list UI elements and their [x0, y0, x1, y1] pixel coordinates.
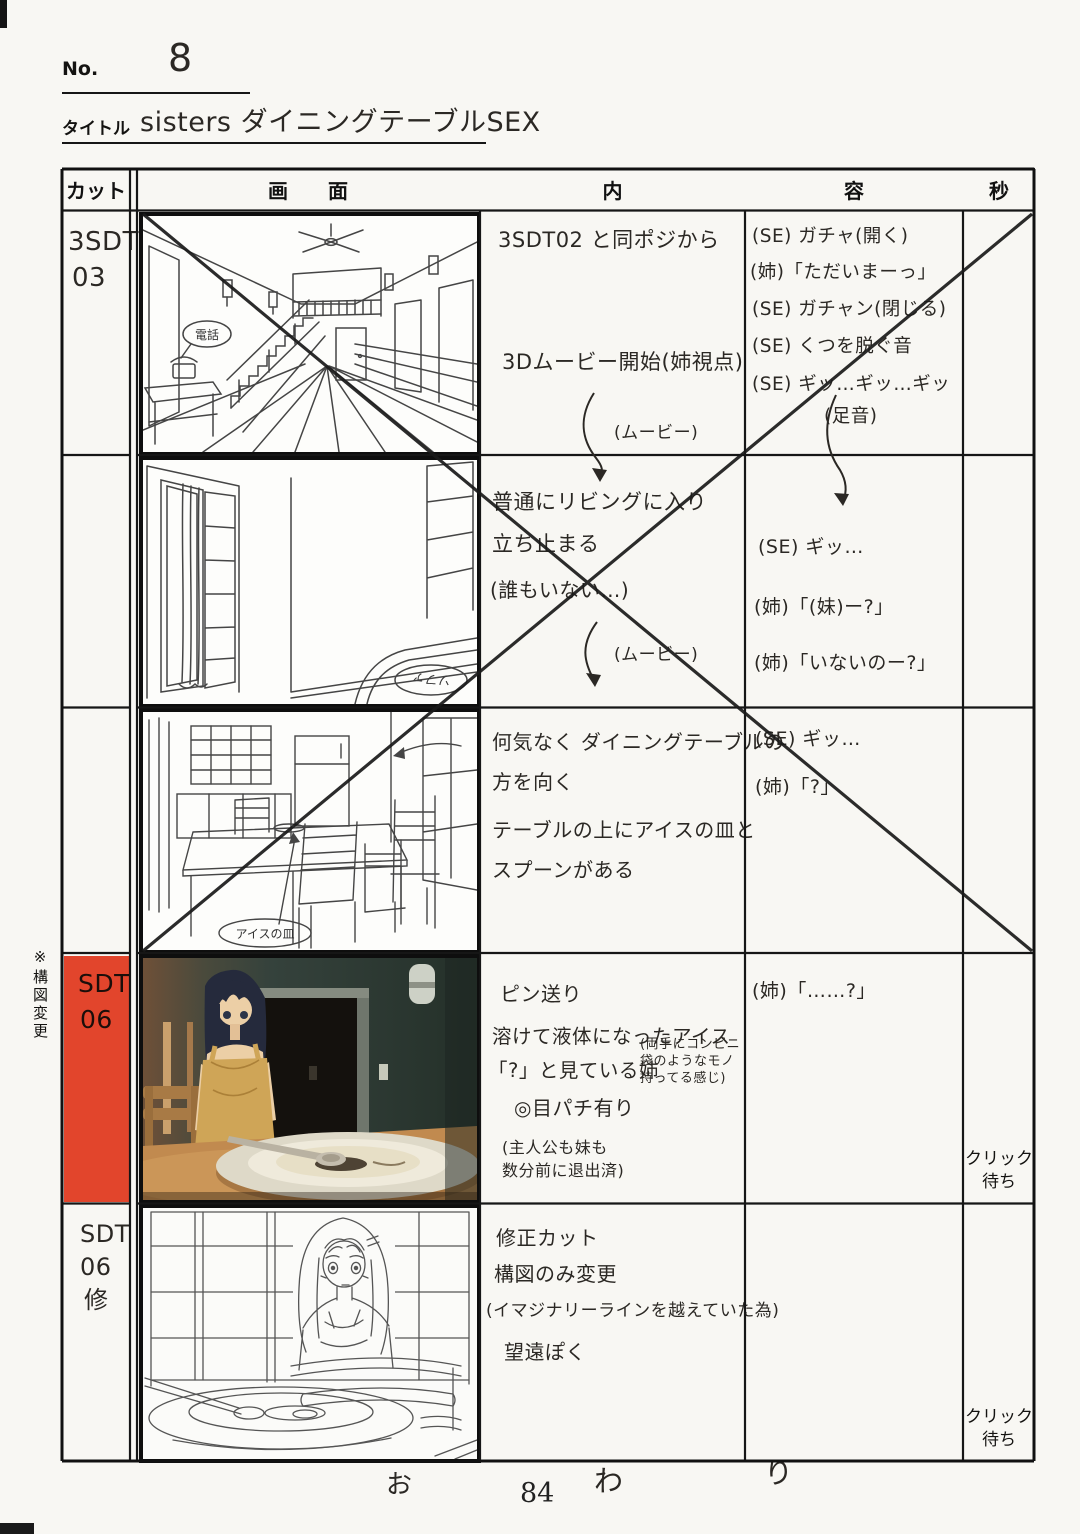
content-note: ピン送り — [500, 978, 582, 1007]
cut-line: SDT — [78, 966, 130, 1002]
hallway-sketch-drawing: 電話 — [143, 216, 477, 452]
dialog-line: (姉)「……?」 — [752, 976, 876, 1003]
dialog-line: (姉)「いないのー?」 — [754, 648, 936, 675]
page-no-label: No. — [62, 58, 98, 80]
cut-line: 3SDT — [68, 224, 139, 260]
content-note: 方を向く — [492, 766, 574, 795]
storyboard-panel-diningroom-sketch: アイスの皿 — [139, 708, 481, 954]
no-underline — [62, 92, 250, 94]
panel-label-ice-plate: アイスの皿 — [235, 927, 294, 941]
cut-line: 03 — [68, 260, 139, 296]
col-header-seconds: 秒 — [963, 168, 1035, 210]
bottom-note-line: 数分前に退出済) — [502, 1159, 624, 1182]
content-note: 立ち止まる — [492, 528, 600, 558]
panel-label-telephone: 電話 — [195, 327, 219, 342]
side-note-line: (両手にコンビニ — [640, 1036, 740, 1053]
page-number: 84 — [520, 1478, 554, 1509]
title-label: タイトル — [62, 114, 130, 139]
content-note: 何気なく ダイニングテーブルの — [492, 726, 785, 755]
dialog-line: (SE) ギッ… — [755, 724, 861, 751]
dialog-line: (SE) ギッ…ギッ…ギッ — [752, 370, 950, 396]
content-note: 普通にリビングに入り — [492, 486, 707, 516]
color-frame-anime-still — [143, 958, 477, 1200]
storyboard-page-scan: { "page": { "no_label": "No.", "no_value… — [0, 0, 1080, 1534]
content-note: 望遠ぽく — [504, 1336, 586, 1365]
storyboard-panel-hallway-sketch: 電話 — [139, 212, 481, 456]
dialog-line: (足音) — [824, 402, 877, 428]
content-bottom-note: (主人公も妹も 数分前に退出済) — [502, 1136, 624, 1182]
col-header-screen: 画 面 — [136, 168, 480, 210]
side-note-line: 袋のようなモノ — [640, 1053, 740, 1070]
content-note: ◎目パチ有り — [514, 1092, 634, 1121]
movie-note: (ムービー) — [614, 640, 698, 665]
content-note: 3SDT02 と同ポジから — [498, 224, 720, 254]
content-note: 3Dムービー開始(姉視点) — [502, 346, 743, 376]
dialog-line: (SE) ガチャ(開く) — [752, 222, 909, 248]
revised-sketch-drawing — [143, 1208, 477, 1459]
scan-artifact-bottom-left — [0, 1523, 34, 1534]
col-header-cut: カット — [62, 168, 130, 210]
page-no-value: 8 — [168, 36, 193, 80]
scan-artifact-top-left — [0, 0, 7, 28]
cut-line: 06 — [80, 1251, 130, 1284]
content-note: テーブルの上にアイスの皿と — [492, 814, 756, 843]
livingroom-sketch-drawing: ソファ — [143, 460, 477, 704]
seconds-click-wait: クリック待ち — [963, 1148, 1035, 1194]
diningroom-sketch-drawing: アイスの皿 — [143, 712, 477, 950]
content-side-note: (両手にコンビニ 袋のようなモノ 持ってる感じ) — [640, 1036, 740, 1087]
seconds-click-wait: クリック待ち — [963, 1406, 1035, 1452]
col-header-dialog: 容 — [745, 168, 963, 210]
content-note: 「?」と見ている姉 — [488, 1054, 659, 1083]
storyboard-panel-revised-sketch — [139, 1204, 481, 1463]
cut-line: 06 — [78, 1002, 130, 1038]
cut-number: 3SDT 03 — [68, 224, 139, 296]
movie-note: (ムービー) — [614, 418, 698, 443]
footer-mark-ri: り — [764, 1450, 794, 1492]
content-note: 構図のみ変更 — [494, 1258, 617, 1287]
content-note: (イマジナリーラインを越えていた為) — [486, 1296, 779, 1321]
title-value: sisters ダイニングテーブルSEX — [140, 100, 541, 139]
title-underline — [62, 142, 486, 144]
dialog-line: (SE) ガチャン(閉じる) — [752, 295, 947, 321]
content-note: スプーンがある — [492, 854, 635, 883]
bottom-note-line: (主人公も妹も — [502, 1136, 624, 1159]
col-header-content: 内 — [480, 168, 745, 210]
content-note: (誰もいない…) — [490, 574, 629, 603]
storyboard-panel-color-frame — [139, 954, 481, 1204]
dialog-line: (姉)「ただいまーっ」 — [750, 258, 936, 284]
storyboard-panel-livingroom-sketch: ソファ — [139, 456, 481, 708]
margin-note-composition-change: ※構図変更 — [30, 948, 51, 1088]
cut-number-revised: SDT 06 修 — [80, 1218, 130, 1317]
dialog-line: (SE) ギッ… — [758, 532, 864, 559]
side-note-line: 持ってる感じ) — [640, 1070, 740, 1087]
cut-line: 修 — [80, 1284, 130, 1317]
panel-label-sofa: ソファ — [411, 670, 451, 687]
cut-number-highlighted: SDT 06 — [78, 966, 130, 1038]
dialog-line: (SE) くつを脱ぐ音 — [752, 332, 912, 358]
content-note: 修正カット — [496, 1222, 599, 1251]
footer-mark-wa: わ — [594, 1458, 624, 1500]
dialog-line: (姉)「(妹)ー?」 — [754, 592, 894, 619]
footer-mark-o: お — [386, 1464, 413, 1501]
cut-line: SDT — [80, 1218, 130, 1251]
dialog-line: (姉)「?」 — [755, 772, 840, 799]
